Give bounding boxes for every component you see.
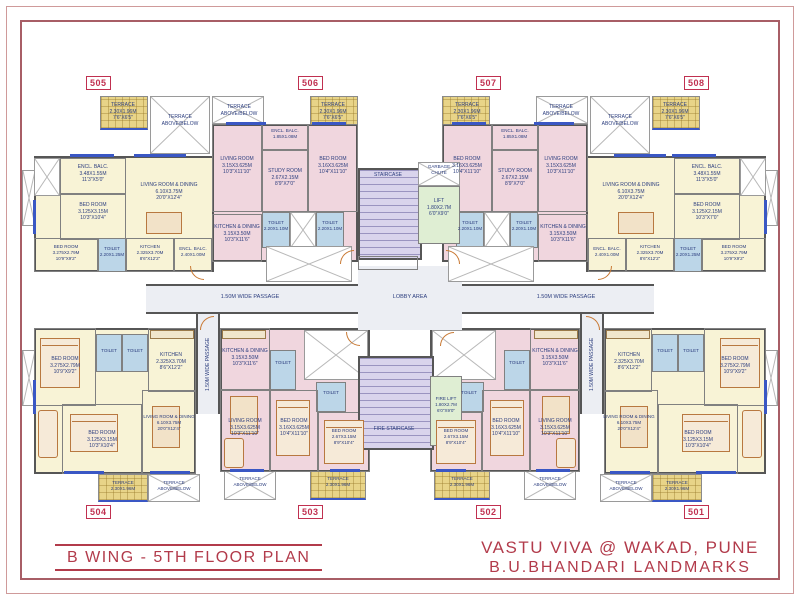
sheet-border-inner bbox=[20, 20, 780, 580]
developer-name: B.U.BHANDARI LANDMARKS bbox=[470, 559, 770, 577]
project-name: VASTU VIVA @ WAKAD, PUNE bbox=[470, 538, 770, 558]
plan-title: B WING - 5TH FLOOR PLAN bbox=[55, 544, 322, 571]
floor-plan-sheet: { "title_block": { "plan_title": "B WING… bbox=[0, 0, 800, 600]
project-title-block: VASTU VIVA @ WAKAD, PUNE B.U.BHANDARI LA… bbox=[470, 538, 770, 577]
